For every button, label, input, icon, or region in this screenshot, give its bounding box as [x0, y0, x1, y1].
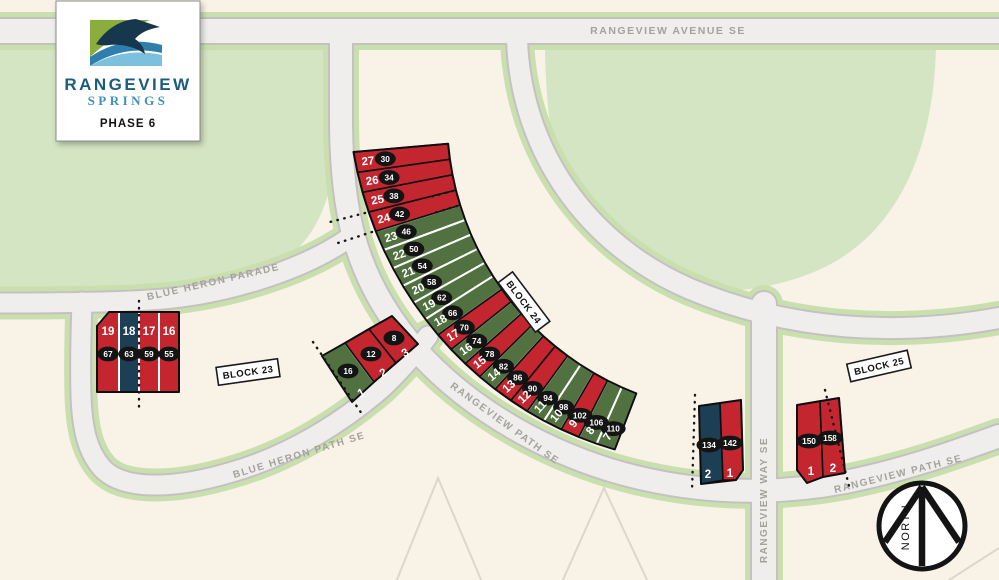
lot-address-badge: 54	[412, 258, 433, 273]
lot-address-text: 66	[448, 308, 458, 318]
lot-address-text: 8	[392, 333, 397, 343]
lot-address-text: 78	[485, 349, 495, 359]
lot-address-text: 59	[144, 349, 154, 359]
lot-address-text: 82	[499, 361, 509, 371]
lot-address-text: 67	[103, 349, 113, 359]
lot-address-badge: 30	[375, 151, 396, 166]
lot-address-badge: 67	[98, 347, 119, 362]
lot-address-badge: 42	[389, 207, 410, 222]
map-canvas: 3027342638254224462350225421582062196618…	[0, 0, 999, 580]
lot-address-text: 30	[381, 154, 391, 164]
lot-number-label: 18	[123, 326, 136, 338]
lot-address-text: 110	[606, 424, 620, 434]
lot-number-label: 1	[808, 466, 815, 478]
logo-card: RANGEVIEW SPRINGS PHASE 6	[56, 1, 200, 141]
lot-group-block23-west: 6719631859175516	[97, 312, 180, 392]
street-label-rangeview-avenue: RANGEVIEW AVENUE SE	[590, 25, 746, 37]
lot-address-badge: 55	[159, 347, 180, 362]
lot-address-text: 46	[402, 227, 412, 237]
lot-address-text: 158	[823, 433, 837, 443]
lot-address-badge: 38	[383, 189, 404, 204]
lot-number-label: 1	[727, 468, 734, 480]
lot-address-text: 70	[460, 322, 470, 332]
lot-number-label: 17	[143, 326, 156, 338]
lot-number-label: 26	[365, 174, 379, 188]
lot-number-label: 2	[830, 463, 836, 475]
lot-address-badge: 16	[338, 364, 359, 379]
site-plan-map: 3027342638254224462350225421582062196618…	[0, 0, 999, 580]
lot-address-badge: 50	[403, 242, 424, 257]
lot-address-text: 12	[366, 349, 376, 359]
lot-number-label: 2	[705, 469, 711, 481]
lot-address-text: 74	[472, 336, 482, 346]
lot-address-text: 55	[164, 349, 174, 359]
lot-address-text: 63	[124, 349, 134, 359]
lot-address-text: 62	[437, 293, 447, 303]
lot-address-text: 134	[702, 440, 716, 450]
lot-address-badge: 34	[379, 170, 400, 185]
lot-address-badge: 12	[361, 347, 382, 362]
north-arrow: NORTH	[879, 483, 965, 569]
lot-address-badge: 134	[697, 438, 722, 453]
north-arrow-text: NORTH	[900, 504, 912, 550]
lot-address-text: 106	[589, 417, 603, 427]
lot-address-badge: 46	[396, 224, 417, 239]
lot-address-badge: 59	[139, 347, 160, 362]
lot-address-text: 54	[418, 261, 428, 271]
lot-address-text: 86	[513, 373, 523, 383]
lot-address-text: 34	[384, 173, 394, 183]
lot-address-text: 94	[543, 393, 553, 403]
lot-address-text: 150	[802, 436, 816, 446]
lot-address-text: 142	[723, 438, 737, 448]
lot-number-label: 19	[102, 326, 115, 338]
lot-address-text: 102	[573, 410, 587, 420]
lot-address-badge: 63	[119, 347, 140, 362]
lot-address-text: 50	[409, 244, 419, 254]
lot-number-label: 27	[361, 155, 375, 168]
lot-address-text: 38	[389, 191, 399, 201]
phase-label: PHASE 6	[100, 118, 156, 130]
lot-address-text: 16	[343, 366, 353, 376]
lot-address-badge: 8	[384, 331, 405, 346]
lot-address-text: 42	[395, 209, 405, 219]
lot-number-label: 16	[163, 326, 176, 338]
lot-group-way-west: 13421421	[697, 400, 744, 484]
lot-address-badge: 142	[718, 436, 743, 451]
street-label-rangeview-way: RANGEVIEW WAY SE	[759, 437, 770, 563]
lot-group-way-east: 15011582	[797, 398, 846, 483]
lot-address-text: 90	[528, 383, 538, 393]
lot-address-text: 58	[427, 277, 437, 287]
brand-subname: SPRINGS	[88, 93, 169, 108]
brand-name: RANGEVIEW	[64, 75, 191, 94]
lot-address-badge: 150	[797, 434, 822, 449]
